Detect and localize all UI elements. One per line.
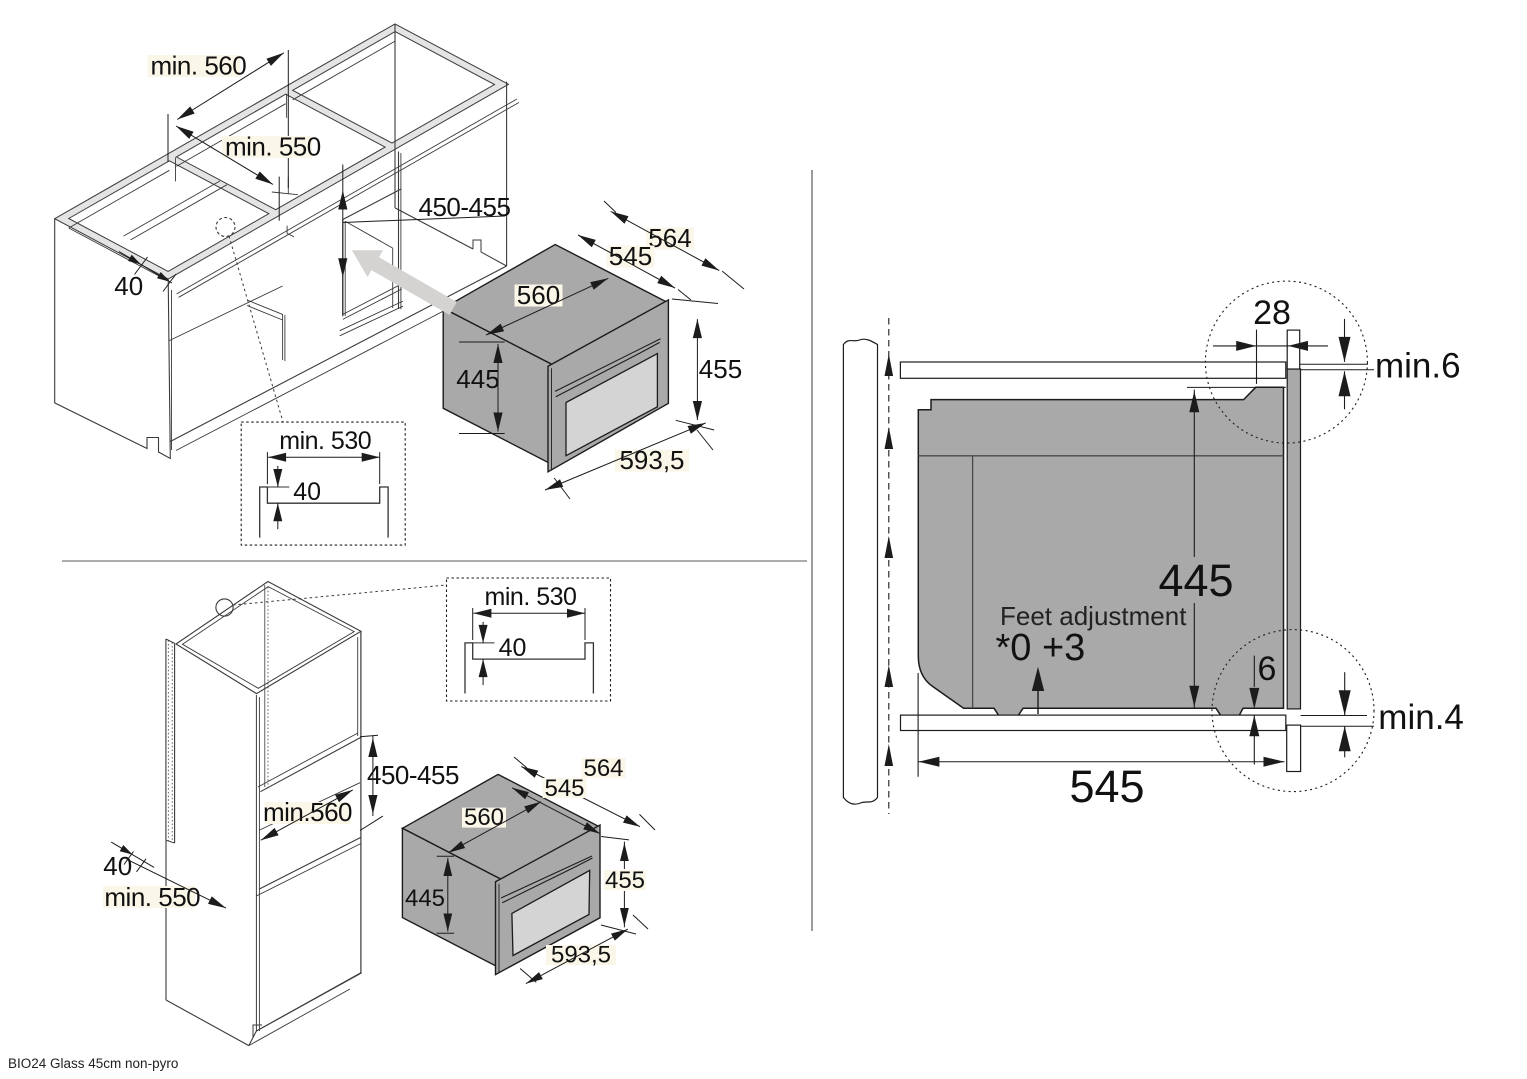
svg-text:445: 445 xyxy=(405,885,445,912)
svg-text:*0 +3: *0 +3 xyxy=(996,627,1086,669)
svg-text:564: 564 xyxy=(583,755,623,782)
svg-text:40: 40 xyxy=(293,478,321,506)
svg-text:545: 545 xyxy=(544,775,584,802)
svg-text:40: 40 xyxy=(499,634,527,662)
svg-text:455: 455 xyxy=(605,867,645,894)
svg-text:450-455: 450-455 xyxy=(367,760,459,790)
svg-text:min.4: min.4 xyxy=(1378,698,1464,737)
svg-text:545: 545 xyxy=(1069,761,1144,812)
svg-text:545: 545 xyxy=(609,241,652,271)
svg-text:593,5: 593,5 xyxy=(551,942,611,969)
svg-text:min. 550: min. 550 xyxy=(225,132,321,162)
svg-text:40: 40 xyxy=(114,271,143,301)
svg-text:40: 40 xyxy=(103,851,132,881)
svg-text:593,5: 593,5 xyxy=(619,445,684,475)
svg-text:6: 6 xyxy=(1258,650,1277,688)
svg-text:min. 550: min. 550 xyxy=(104,882,200,912)
svg-text:min. 530: min. 530 xyxy=(279,427,371,455)
svg-text:BIO24 Glass 45cm non-pyro: BIO24 Glass 45cm non-pyro xyxy=(8,1056,178,1071)
svg-text:564: 564 xyxy=(648,223,691,253)
svg-text:min. 530: min. 530 xyxy=(485,583,577,611)
svg-text:28: 28 xyxy=(1253,294,1291,332)
svg-text:560: 560 xyxy=(517,280,560,310)
svg-text:min. 560: min. 560 xyxy=(151,51,247,81)
svg-text:455: 455 xyxy=(699,354,742,384)
svg-text:445: 445 xyxy=(1158,555,1233,606)
svg-text:min.6: min.6 xyxy=(1375,347,1461,386)
svg-text:445: 445 xyxy=(456,364,499,394)
svg-text:560: 560 xyxy=(464,804,504,831)
